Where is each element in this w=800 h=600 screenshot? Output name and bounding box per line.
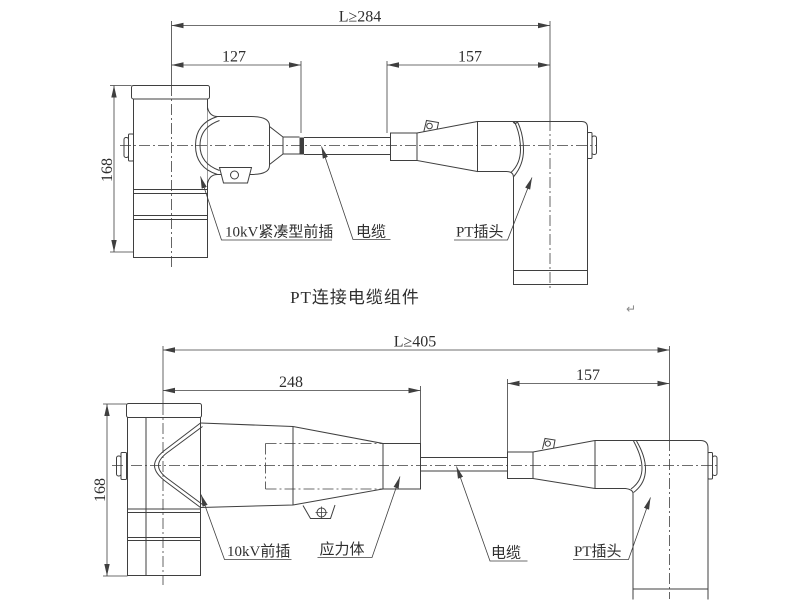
top-dim-height: 168 (99, 158, 116, 182)
pt-plug-rear-cylinder (391, 133, 418, 161)
bottom-label-front-plug: 10kV前插 (227, 543, 290, 560)
top-dim-overall: L≥284 (339, 9, 382, 26)
bottom-left-stub-flange (121, 453, 127, 480)
top-left-body (134, 99, 208, 258)
pt-plug-elbow-body (595, 441, 708, 600)
top-label-cable: 电缆 (356, 224, 386, 241)
paragraph-mark: ↵ (626, 302, 636, 316)
pt-plug-ear-hole (545, 441, 550, 446)
bottom-label-cable: 电缆 (491, 545, 521, 562)
bottom-left-body (128, 418, 201, 576)
top-left-stub-flange (129, 134, 134, 161)
top-left-body-cap (132, 86, 210, 100)
bottom-label-stress-body: 应力体 (320, 540, 365, 558)
top-cable-lines (304, 138, 391, 155)
pt-plug-elbow-body (478, 122, 588, 285)
bottom-dim-front: 248 (279, 374, 303, 391)
bottom-dim-plug: 157 (576, 367, 600, 384)
front-plug-cable-band (300, 138, 305, 155)
bottom-dim-height: 168 (92, 478, 109, 502)
bottom-left-body-bands (128, 509, 201, 541)
top-dim-front: 127 (222, 49, 246, 66)
bottom-cable-lines (421, 458, 508, 472)
technical-drawing-page: L≥284 127 157 168 10kV紧凑型前插 电缆 PT插头 PT连接… (0, 0, 800, 600)
cad-drawing: L≥284 127 157 168 10kV紧凑型前插 电缆 PT插头 PT连接… (0, 0, 800, 600)
top-left-stub-cap (124, 138, 129, 158)
front-plug-clamp-tab (220, 168, 252, 184)
front-plug-hidden-lines (266, 444, 384, 490)
top-dim-plug: 157 (458, 49, 482, 66)
top-view: L≥284 127 157 168 10kV紧凑型前插 电缆 PT插头 (99, 9, 597, 292)
bottom-left-body-cap (127, 404, 202, 418)
top-label-front-plug: 10kV紧凑型前插 (225, 224, 333, 241)
top-label-pt-plug: PT插头 (456, 224, 504, 241)
bottom-label-pt-plug: PT插头 (574, 543, 622, 560)
stress-body-collar (383, 444, 421, 490)
bottom-left-stub-cap (117, 456, 122, 476)
view-title: PT连接电缆组件 (290, 288, 420, 307)
pt-plug-ear (543, 439, 556, 450)
bottom-dim-overall: L≥405 (394, 334, 437, 351)
bottom-view: L≥405 248 157 168 10kV前插 应力体 电缆 PT插头 (92, 334, 719, 600)
front-plug-clamp-cross (316, 507, 328, 519)
